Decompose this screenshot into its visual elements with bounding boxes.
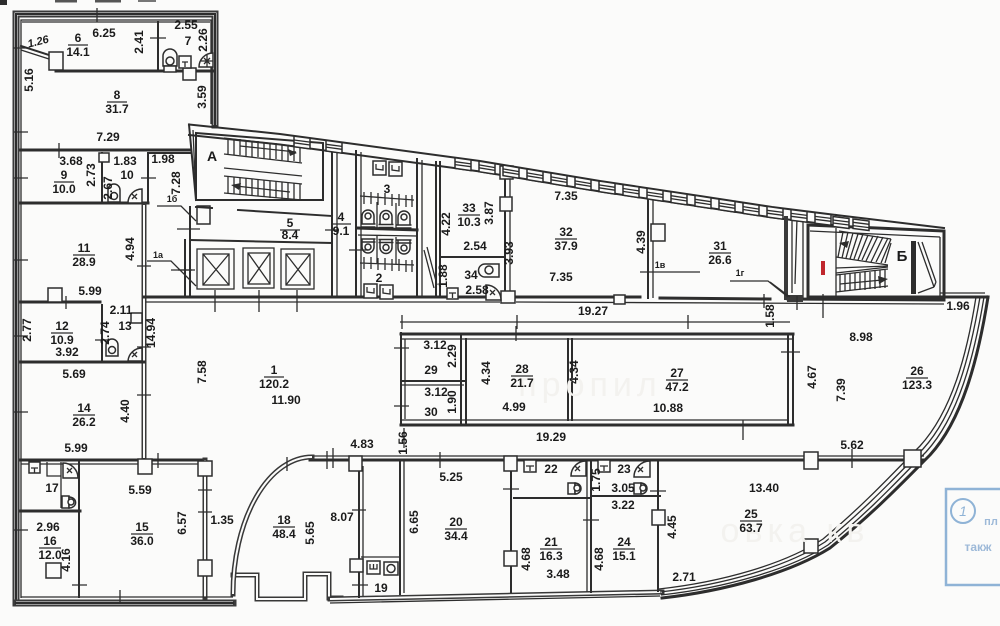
svg-text:1.58: 1.58 xyxy=(763,304,777,328)
svg-text:7.28: 7.28 xyxy=(169,171,183,195)
svg-text:4.22: 4.22 xyxy=(439,212,453,236)
svg-text:7.58: 7.58 xyxy=(195,360,209,384)
svg-text:30: 30 xyxy=(424,405,438,419)
svg-text:1: 1 xyxy=(959,503,967,519)
svg-text:17: 17 xyxy=(45,481,59,495)
svg-text:2.67: 2.67 xyxy=(101,176,115,200)
svg-text:1.98: 1.98 xyxy=(151,152,175,166)
svg-text:34.4: 34.4 xyxy=(444,529,468,543)
svg-text:4.34: 4.34 xyxy=(567,360,581,384)
svg-text:1г: 1г xyxy=(736,268,745,278)
svg-text:3.87: 3.87 xyxy=(482,201,496,225)
svg-text:3: 3 xyxy=(384,182,391,196)
svg-text:123.3: 123.3 xyxy=(902,378,932,392)
svg-text:такж: такж xyxy=(964,540,992,554)
svg-text:1.88: 1.88 xyxy=(436,264,450,288)
svg-text:8.98: 8.98 xyxy=(849,330,873,344)
svg-text:16.3: 16.3 xyxy=(539,549,563,563)
svg-text:63.7: 63.7 xyxy=(739,521,763,535)
svg-text:4.39: 4.39 xyxy=(634,230,648,254)
svg-text:1.90: 1.90 xyxy=(445,390,459,414)
svg-text:3.48: 3.48 xyxy=(546,567,570,581)
svg-text:4.67: 4.67 xyxy=(805,365,819,389)
svg-text:26.6: 26.6 xyxy=(708,253,732,267)
svg-text:6.25: 6.25 xyxy=(92,26,116,40)
svg-text:1.96: 1.96 xyxy=(946,299,970,313)
svg-text:4.94: 4.94 xyxy=(123,237,137,261)
svg-text:14.1: 14.1 xyxy=(66,45,90,59)
svg-text:37.9: 37.9 xyxy=(554,239,578,253)
svg-text:2.29: 2.29 xyxy=(445,344,459,368)
svg-text:1б: 1б xyxy=(167,194,178,204)
svg-text:2.26: 2.26 xyxy=(196,28,210,52)
svg-text:3.59: 3.59 xyxy=(195,85,209,109)
svg-text:2.71: 2.71 xyxy=(672,570,696,584)
svg-text:19.27: 19.27 xyxy=(578,304,608,318)
svg-text:5.65: 5.65 xyxy=(303,521,317,545)
svg-text:31: 31 xyxy=(713,239,727,253)
svg-text:9.1: 9.1 xyxy=(333,224,350,238)
svg-text:1в: 1в xyxy=(655,260,666,270)
svg-text:21.7: 21.7 xyxy=(510,376,534,390)
svg-text:2.55: 2.55 xyxy=(174,18,198,32)
svg-text:36.0: 36.0 xyxy=(130,534,154,548)
svg-text:25: 25 xyxy=(744,507,758,521)
svg-text:21: 21 xyxy=(544,535,558,549)
svg-text:1.35: 1.35 xyxy=(210,513,234,527)
svg-text:2.11: 2.11 xyxy=(110,303,133,317)
svg-text:7.35: 7.35 xyxy=(554,189,578,203)
svg-text:6.57: 6.57 xyxy=(175,511,189,535)
svg-text:2.74: 2.74 xyxy=(98,321,112,345)
svg-text:4.40: 4.40 xyxy=(118,399,132,423)
svg-text:13: 13 xyxy=(118,319,132,333)
svg-text:1а: 1а xyxy=(153,250,164,260)
svg-text:7.35: 7.35 xyxy=(549,270,573,284)
svg-text:34: 34 xyxy=(464,268,478,282)
svg-text:3.92: 3.92 xyxy=(55,345,79,359)
svg-text:2.73: 2.73 xyxy=(84,163,98,187)
svg-text:3.22: 3.22 xyxy=(611,498,635,512)
svg-text:3.93: 3.93 xyxy=(502,241,516,265)
svg-text:2.54: 2.54 xyxy=(463,239,487,253)
svg-text:120.2: 120.2 xyxy=(259,377,289,391)
svg-text:19: 19 xyxy=(374,581,388,595)
svg-text:18: 18 xyxy=(277,513,291,527)
svg-text:10.88: 10.88 xyxy=(653,401,683,415)
svg-text:пл: пл xyxy=(984,516,998,528)
svg-text:5.99: 5.99 xyxy=(64,441,88,455)
svg-text:5.25: 5.25 xyxy=(439,470,463,484)
svg-text:22: 22 xyxy=(544,462,558,476)
svg-text:33: 33 xyxy=(462,201,476,215)
svg-text:2.77: 2.77 xyxy=(20,318,34,342)
svg-text:4.68: 4.68 xyxy=(519,547,533,571)
svg-text:7: 7 xyxy=(185,34,192,48)
svg-text:5.59: 5.59 xyxy=(128,483,152,497)
svg-text:9: 9 xyxy=(61,168,68,182)
svg-text:1: 1 xyxy=(271,363,278,377)
svg-text:27: 27 xyxy=(670,366,684,380)
svg-text:10.0: 10.0 xyxy=(52,182,76,196)
svg-text:8.07: 8.07 xyxy=(330,510,354,524)
svg-text:26.2: 26.2 xyxy=(72,415,96,429)
svg-text:4.68: 4.68 xyxy=(592,547,606,571)
svg-text:4: 4 xyxy=(338,210,345,224)
svg-text:3.68: 3.68 xyxy=(59,154,83,168)
svg-text:24: 24 xyxy=(617,535,631,549)
svg-text:5.62: 5.62 xyxy=(840,438,864,452)
svg-text:26: 26 xyxy=(910,364,924,378)
svg-text:11: 11 xyxy=(78,241,91,255)
svg-text:3.12: 3.12 xyxy=(423,338,447,352)
svg-text:1.56: 1.56 xyxy=(396,431,410,455)
svg-text:23: 23 xyxy=(617,462,631,476)
svg-text:12: 12 xyxy=(55,319,69,333)
svg-text:7.29: 7.29 xyxy=(96,130,120,144)
svg-text:7.39: 7.39 xyxy=(834,378,848,402)
svg-text:2.96: 2.96 xyxy=(36,520,60,534)
svg-text:2.41: 2.41 xyxy=(132,30,146,54)
svg-text:15.1: 15.1 xyxy=(612,549,636,563)
svg-text:32: 32 xyxy=(559,225,573,239)
svg-text:5.99: 5.99 xyxy=(78,284,102,298)
svg-text:5.69: 5.69 xyxy=(62,367,86,381)
svg-text:2: 2 xyxy=(376,271,383,285)
svg-text:8.4: 8.4 xyxy=(282,228,299,242)
svg-text:2.58: 2.58 xyxy=(465,283,489,297)
svg-text:6: 6 xyxy=(75,31,82,45)
svg-text:16: 16 xyxy=(43,534,57,548)
svg-text:4.34: 4.34 xyxy=(479,361,493,385)
svg-text:20: 20 xyxy=(449,515,463,529)
svg-text:4.45: 4.45 xyxy=(665,515,679,539)
svg-text:48.4: 48.4 xyxy=(272,527,296,541)
svg-text:10.3: 10.3 xyxy=(457,215,481,229)
svg-text:8: 8 xyxy=(114,88,121,102)
svg-text:4.99: 4.99 xyxy=(502,400,526,414)
svg-text:4.83: 4.83 xyxy=(350,437,374,451)
svg-text:31.7: 31.7 xyxy=(105,102,129,116)
svg-text:пропил: пропил xyxy=(518,366,661,404)
svg-text:4.16: 4.16 xyxy=(59,548,73,572)
svg-text:29: 29 xyxy=(424,363,438,377)
svg-text:11.90: 11.90 xyxy=(271,393,301,407)
svg-text:Б: Б xyxy=(897,248,908,265)
svg-text:47.2: 47.2 xyxy=(665,380,689,394)
svg-text:14: 14 xyxy=(77,401,91,415)
svg-text:28: 28 xyxy=(515,362,529,376)
svg-text:6.65: 6.65 xyxy=(407,510,421,534)
svg-text:13.40: 13.40 xyxy=(749,481,779,495)
svg-text:A: A xyxy=(207,148,217,164)
svg-text:3.05: 3.05 xyxy=(611,481,635,495)
svg-text:19.29: 19.29 xyxy=(536,430,566,444)
svg-text:1.83: 1.83 xyxy=(113,154,137,168)
svg-text:28.9: 28.9 xyxy=(72,255,96,269)
svg-text:10: 10 xyxy=(120,168,134,182)
svg-text:14.94: 14.94 xyxy=(144,318,158,348)
svg-text:15: 15 xyxy=(135,520,149,534)
svg-text:1.75: 1.75 xyxy=(589,468,603,492)
svg-text:5.16: 5.16 xyxy=(22,68,36,92)
